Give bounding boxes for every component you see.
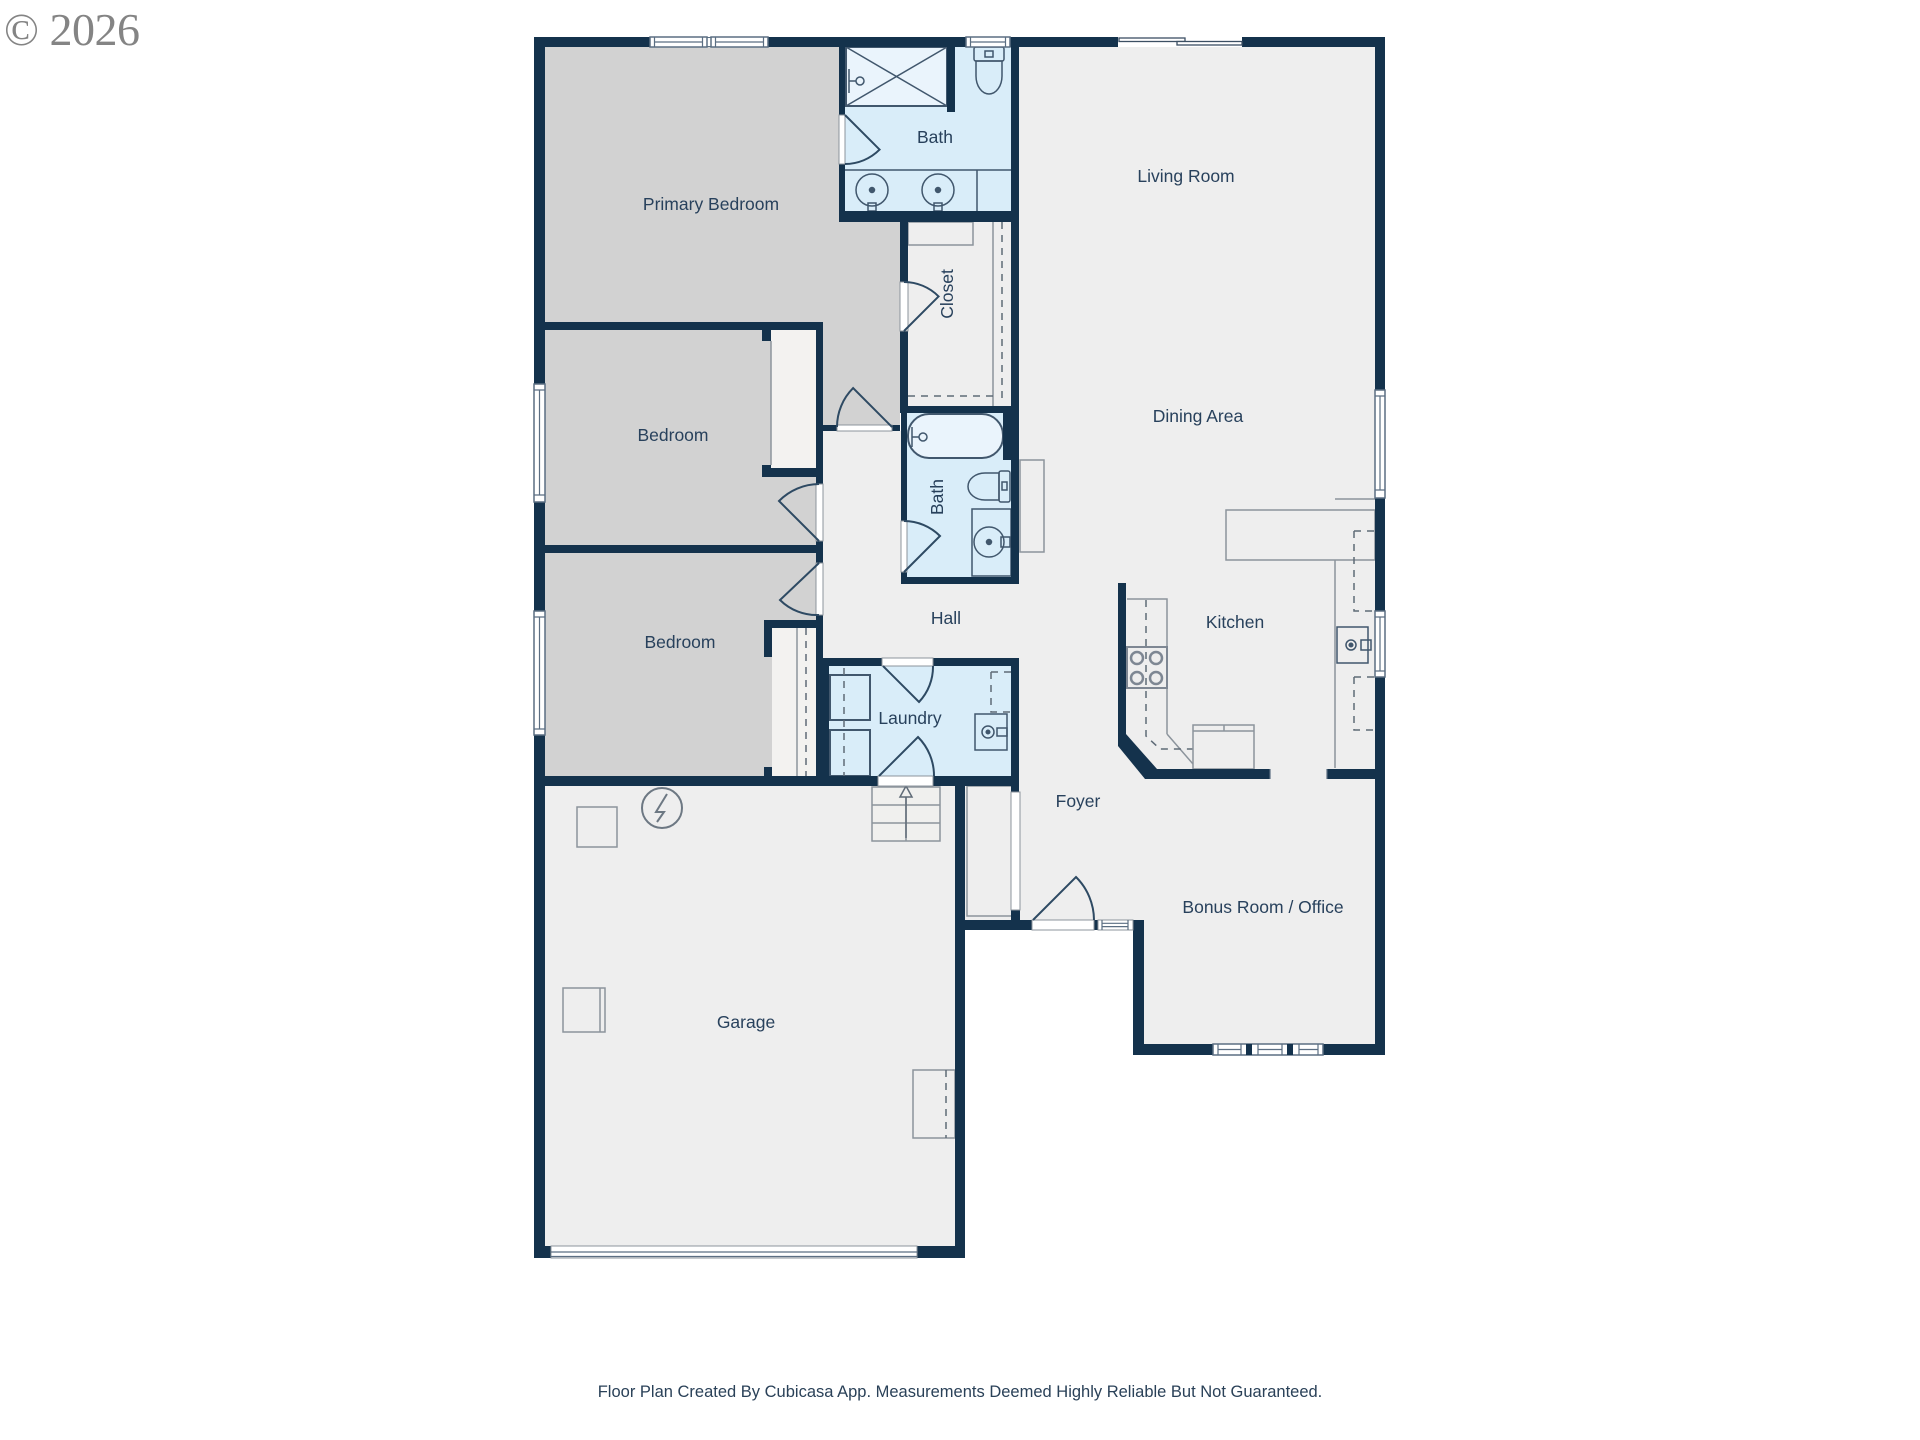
svg-text:Foyer: Foyer	[1056, 791, 1101, 811]
svg-text:Bonus Room / Office: Bonus Room / Office	[1182, 897, 1343, 917]
svg-text:© 2026: © 2026	[4, 4, 139, 55]
svg-text:Bedroom: Bedroom	[637, 425, 708, 445]
svg-text:Laundry: Laundry	[878, 708, 941, 728]
svg-text:Bath: Bath	[917, 127, 953, 147]
svg-text:Garage: Garage	[717, 1012, 775, 1032]
svg-text:Bath: Bath	[927, 479, 947, 515]
svg-text:Floor Plan Created By Cubicasa: Floor Plan Created By Cubicasa App. Meas…	[598, 1383, 1323, 1401]
svg-text:Kitchen: Kitchen	[1206, 612, 1264, 632]
svg-text:Closet: Closet	[937, 269, 957, 319]
svg-text:Hall: Hall	[931, 608, 961, 628]
svg-text:Living Room: Living Room	[1137, 166, 1234, 186]
svg-text:Bedroom: Bedroom	[644, 632, 715, 652]
svg-text:Primary Bedroom: Primary Bedroom	[643, 194, 779, 214]
svg-text:Dining Area: Dining Area	[1153, 406, 1244, 426]
